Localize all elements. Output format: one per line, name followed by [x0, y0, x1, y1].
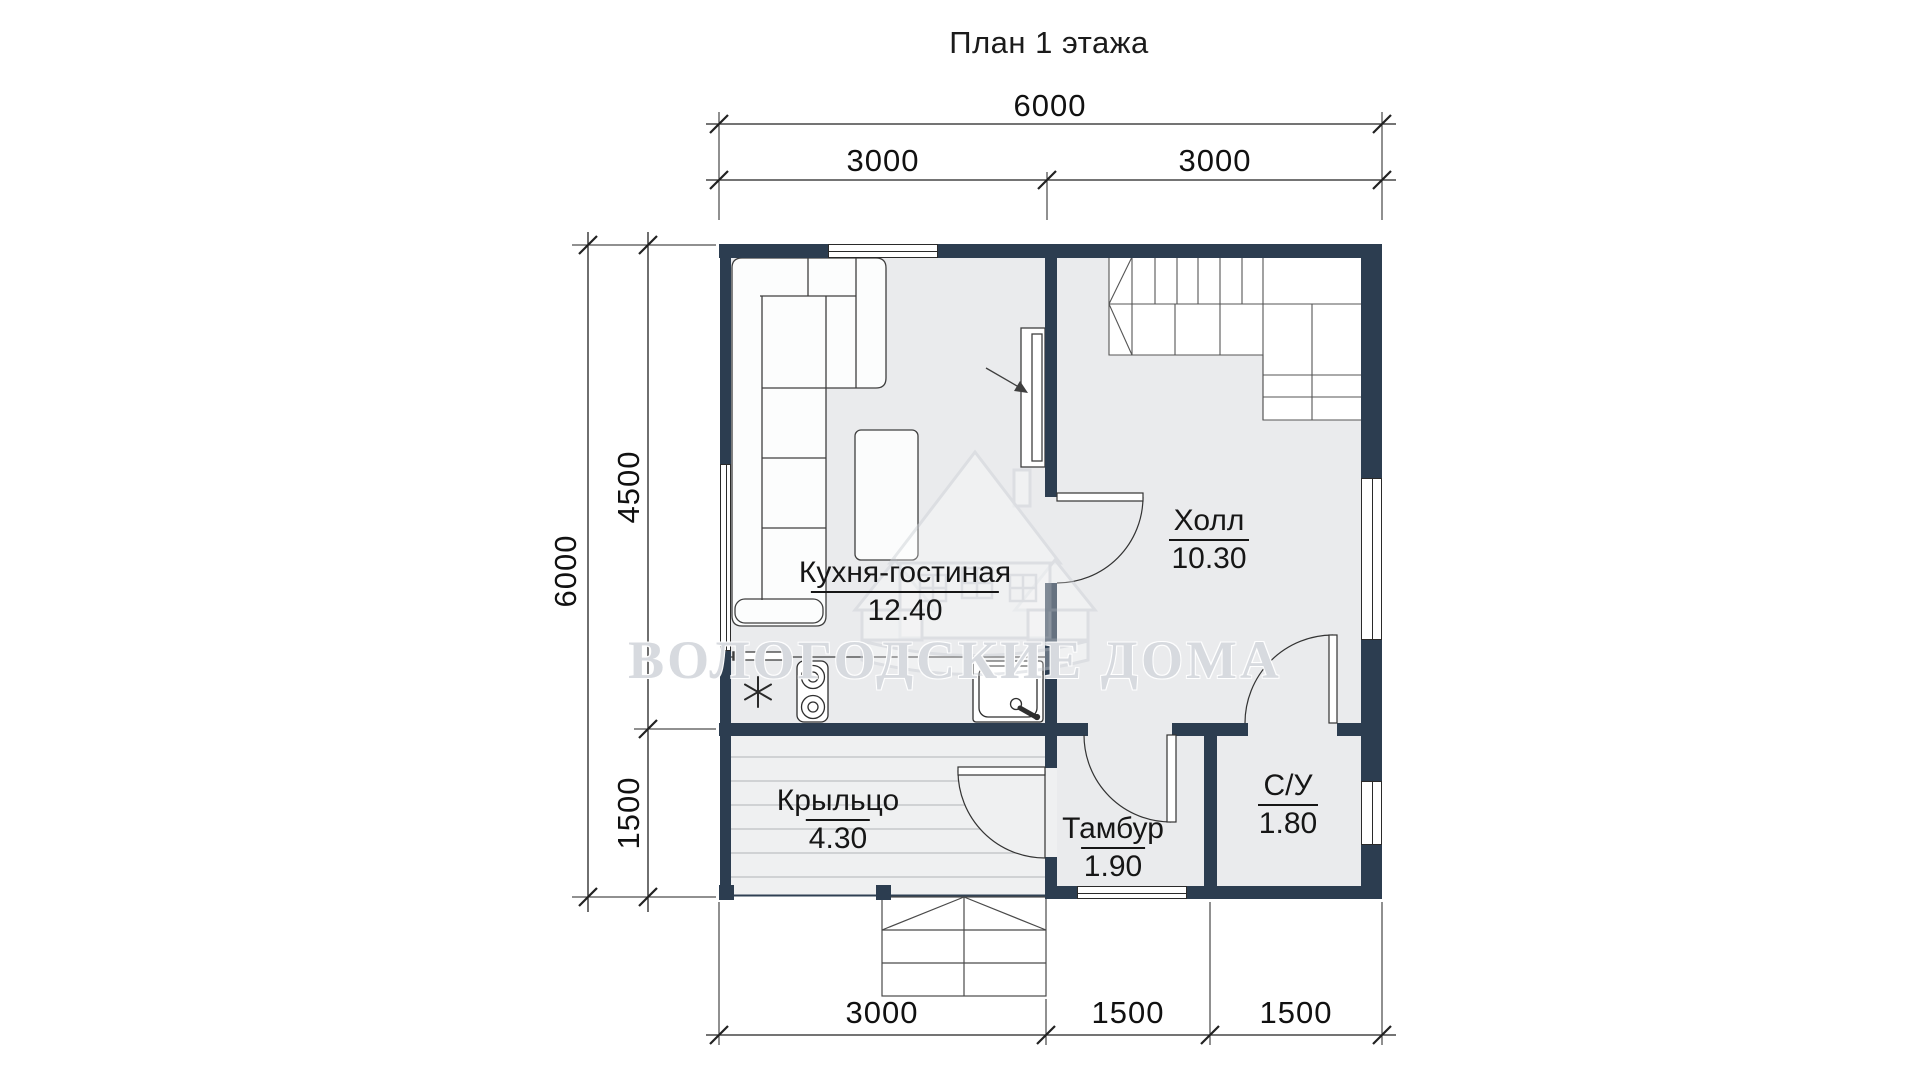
- door-hall-wc: [1245, 635, 1337, 723]
- room-area: 4.30: [777, 823, 899, 855]
- door-porch-tambour: [958, 767, 1045, 858]
- room-area: 1.90: [1062, 851, 1164, 883]
- room-label-kitchen: Кухня-гостиная 12.40: [799, 557, 1011, 627]
- room-name: Тамбур: [1062, 813, 1164, 845]
- room-name: Крыльцо: [777, 785, 899, 817]
- room-area: 10.30: [1169, 543, 1249, 575]
- room-area: 12.40: [799, 595, 1011, 627]
- page-title: План 1 этажа: [949, 25, 1148, 61]
- room-label-hall: Холл 10.30: [1169, 505, 1249, 575]
- door-kitchen-hall: [1057, 493, 1143, 583]
- room-label-wc: С/У 1.80: [1258, 770, 1318, 840]
- room-label-porch: Крыльцо 4.30: [777, 785, 899, 855]
- room-name: Холл: [1169, 505, 1249, 537]
- room-name: С/У: [1258, 770, 1318, 802]
- floor-plan-canvas: ВОЛОГОДСКИЕ ДОМА План 1 этажа 6000 3000 …: [0, 0, 1920, 1080]
- room-area: 1.80: [1258, 808, 1318, 840]
- room-name: Кухня-гостиная: [799, 557, 1011, 589]
- door-hall-tambour: [1084, 735, 1176, 822]
- room-label-tambour: Тамбур 1.90: [1062, 813, 1164, 883]
